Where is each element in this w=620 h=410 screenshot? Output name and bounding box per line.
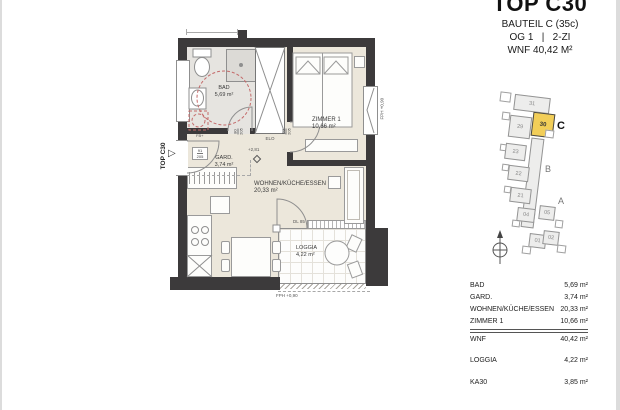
dining-chair bbox=[221, 259, 230, 272]
loggia-parapet-label: FPH +0,90 bbox=[276, 293, 298, 298]
area-row: ZIMMER 1 10,66 m² bbox=[470, 318, 588, 325]
keyplan-unit-22: 22 bbox=[507, 165, 530, 182]
wall-zimmer-left-lower bbox=[287, 152, 293, 160]
room-label-loggia: LOGGIA 4,22 m² bbox=[296, 245, 336, 258]
area-value: 3,85 m² bbox=[564, 379, 588, 386]
hall-zone-line bbox=[187, 175, 250, 176]
area-row: GARD. 3,74 m² bbox=[470, 294, 588, 301]
dining-chair bbox=[272, 259, 281, 272]
area-ka-row: KA30 3,85 m² bbox=[470, 379, 588, 386]
elo-closet bbox=[255, 47, 285, 134]
unit-number: 22 bbox=[515, 170, 522, 177]
zimmer-door-size: 80 205 bbox=[281, 125, 292, 139]
dimension-tick bbox=[186, 29, 187, 35]
unit-number: 23 bbox=[512, 149, 519, 156]
area-label: LOGGIA bbox=[470, 357, 497, 364]
unit-number: 05 bbox=[544, 210, 551, 217]
keyplan-unit-23: 23 bbox=[504, 143, 527, 161]
room-area: 5,69 m² bbox=[202, 92, 246, 99]
room-label-zimmer1: ZIMMER 1 10,66 m² bbox=[312, 117, 364, 131]
hall-wardrobe-rail bbox=[189, 172, 235, 184]
page-edge-right bbox=[616, 0, 620, 410]
room-label-bad: BAD 5,69 m² bbox=[202, 85, 246, 98]
area-value: 20,33 m² bbox=[560, 306, 588, 313]
sofa-seat-line bbox=[347, 170, 360, 220]
header-bauteil: BAUTEIL C (35c) bbox=[455, 19, 620, 31]
door-height: 205 bbox=[239, 128, 244, 135]
keyplan-section-c: C bbox=[557, 120, 565, 133]
unit-number: 21 bbox=[517, 192, 524, 199]
area-value: 5,69 m² bbox=[564, 282, 588, 289]
area-label: ZIMMER 1 bbox=[470, 318, 503, 325]
keyplan-unit-04: 04 bbox=[516, 207, 536, 223]
room-area: 4,22 m² bbox=[296, 252, 336, 259]
elo-label: ELO bbox=[259, 136, 281, 141]
area-row: BAD 5,69 m² bbox=[470, 282, 588, 289]
ceiling-height-label: +2,81 bbox=[248, 147, 259, 152]
area-label: GARD. bbox=[470, 294, 492, 301]
unit-number: 04 bbox=[523, 212, 530, 219]
unit-number: 01 bbox=[534, 238, 541, 245]
shower bbox=[226, 49, 257, 82]
area-value: 3,74 m² bbox=[564, 294, 588, 301]
room-area: 20,33 m² bbox=[254, 188, 334, 195]
keyplan-notch bbox=[555, 220, 564, 229]
table-rule bbox=[470, 332, 588, 333]
wall-top-stub bbox=[238, 30, 247, 39]
keyplan-unit-21: 21 bbox=[509, 187, 532, 204]
room-area: 3,74 m² bbox=[200, 162, 248, 169]
unit-number: 02 bbox=[548, 235, 555, 242]
keyplan: 31 29 30 C 23 22 B 21 04 05 A 01 02 bbox=[492, 88, 582, 258]
wall-top bbox=[178, 38, 375, 47]
keyplan-unit-05: 05 bbox=[538, 205, 556, 221]
hall-zone-line-v bbox=[250, 160, 251, 176]
wall-shaft-niche bbox=[176, 60, 190, 122]
area-value: 4,22 m² bbox=[564, 357, 588, 364]
nightstand bbox=[354, 56, 365, 68]
kitchen-sink-unit bbox=[187, 255, 212, 277]
keyplan-notch bbox=[499, 91, 511, 102]
header-wnf: WNF 40,42 M² bbox=[455, 45, 620, 57]
keyplan-section-a: A bbox=[558, 196, 564, 207]
keyplan-notch bbox=[557, 244, 567, 253]
floorplan-sheet: BAD 5,69 m² GARD. 3,74 m² ZIMMER 1 10,66… bbox=[0, 0, 620, 410]
wall-bath-bottom bbox=[187, 128, 228, 134]
dining-chair bbox=[272, 241, 281, 254]
keyplan-notch bbox=[522, 245, 532, 254]
area-label: BAD bbox=[470, 282, 484, 289]
header-floor: OG 1 | 2-ZI bbox=[455, 32, 620, 44]
room-name: ZIMMER 1 bbox=[312, 117, 364, 124]
fb-label: FB+ bbox=[196, 134, 203, 139]
keyplan-unit-31: 31 bbox=[513, 94, 551, 114]
page-title: TOP C30 bbox=[455, 0, 620, 17]
keyplan-notch bbox=[545, 129, 555, 138]
keyplan-unit-29: 29 bbox=[508, 115, 533, 140]
shaft-box bbox=[210, 196, 230, 214]
page-edge-left bbox=[0, 0, 2, 410]
loggia-edge-hatch bbox=[278, 284, 366, 289]
wall-loggia-right-pier bbox=[366, 228, 388, 286]
area-value: 40,42 m² bbox=[560, 336, 588, 343]
entrance-arrow-icon: ▷ bbox=[168, 148, 176, 160]
loggia-projection-line bbox=[278, 291, 370, 292]
room-name: BAD bbox=[202, 85, 246, 92]
door-height: 205 bbox=[197, 154, 204, 159]
area-total-row: WNF 40,42 m² bbox=[470, 336, 588, 343]
area-value: 10,66 m² bbox=[560, 318, 588, 325]
room-label-wohnen: WOHNEN/KÜCHE/ESSEN 20,33 m² bbox=[254, 181, 334, 195]
dimension-line bbox=[186, 32, 238, 33]
unit-number: 31 bbox=[529, 101, 536, 108]
room-name: WOHNEN/KÜCHE/ESSEN bbox=[254, 181, 334, 188]
loggia-door-label: DL 85 bbox=[293, 219, 305, 224]
bad-door-size: 80 205 bbox=[233, 125, 244, 139]
room-area: 10,66 m² bbox=[312, 124, 364, 131]
wall-zimmer-bottom bbox=[287, 160, 375, 166]
dimension-tick bbox=[237, 29, 238, 35]
window-parapet-label: FPH +0,90 bbox=[379, 88, 384, 130]
area-label: WNF bbox=[470, 336, 486, 343]
keyplan-section-b: B bbox=[545, 164, 551, 175]
entrance-door-opening bbox=[176, 140, 188, 176]
entrance-door-size: 91 205 bbox=[192, 147, 208, 160]
room-name: LOGGIA bbox=[296, 245, 336, 252]
wall-zimmer-left-upper bbox=[287, 47, 293, 122]
dining-table bbox=[231, 237, 271, 277]
door-height: 205 bbox=[287, 128, 292, 135]
area-row: WOHNEN/KÜCHE/ESSEN 20,33 m² bbox=[470, 306, 588, 313]
wall-bottom bbox=[170, 277, 280, 290]
sideboard bbox=[305, 139, 358, 152]
dining-chair bbox=[221, 241, 230, 254]
area-loggia-row: LOGGIA 4,22 m² bbox=[470, 357, 588, 364]
zimmer-window bbox=[363, 86, 378, 135]
table-rule bbox=[470, 329, 588, 330]
unit-number: 30 bbox=[539, 122, 546, 129]
area-label: KA30 bbox=[470, 379, 487, 386]
entrance-marker-label: TOP C30 bbox=[160, 134, 168, 178]
unit-number: 29 bbox=[517, 124, 524, 131]
area-label: WOHNEN/KÜCHE/ESSEN bbox=[470, 306, 554, 313]
